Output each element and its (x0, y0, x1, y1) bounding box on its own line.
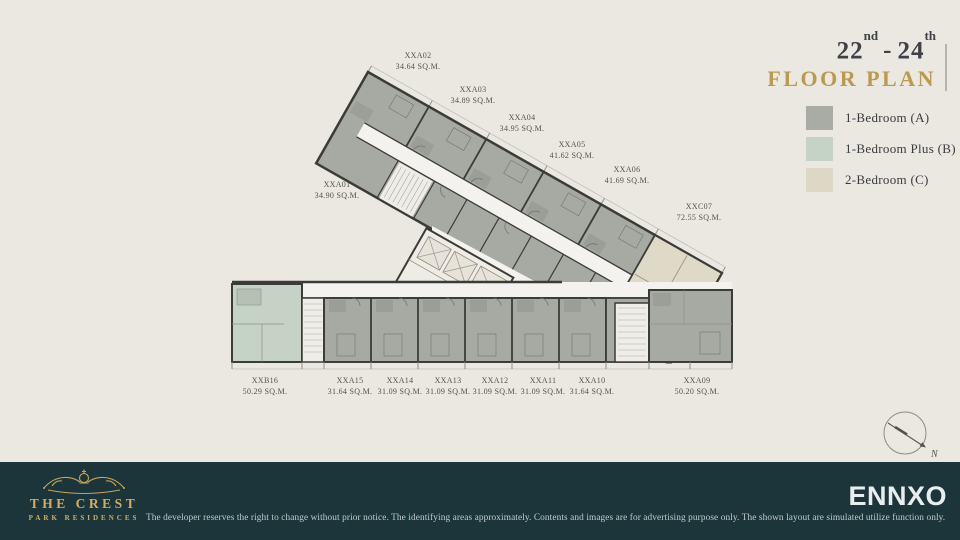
legend-swatch-b (806, 137, 833, 161)
page-title: 22nd-24th FLOOR PLAN (767, 38, 936, 90)
floor-range: 22nd-24th (767, 38, 936, 63)
unit-label-xxa09: XXA0950.20 SQ.M. (675, 375, 720, 397)
unit-label-xxa13: XXA1331.09 SQ.M. (426, 375, 471, 397)
page: XXA0234.64 SQ.M.XXA0334.89 SQ.M.XXA0434.… (0, 0, 960, 540)
publisher-logo: ENNXO (848, 483, 947, 510)
crest-ornament-icon (38, 466, 130, 496)
title-divider (945, 44, 947, 91)
legend-item-1-bedroom-plus-b: 1-Bedroom Plus (B) (806, 137, 956, 161)
unit-label-xxa14: XXA1431.09 SQ.M. (378, 375, 423, 397)
unit-xxa09-area (649, 290, 732, 362)
compass-n-label: N (930, 449, 939, 460)
legend-item-2-bedroom-c: 2-Bedroom (C) (806, 168, 956, 192)
unit-xxb16-area (232, 284, 302, 362)
legend-swatch-c (806, 168, 833, 192)
bottom-wing (232, 282, 732, 369)
floor-plan-heading: FLOOR PLAN (767, 68, 936, 90)
unit-label-xxa12: XXA1231.09 SQ.M. (473, 375, 518, 397)
brand-subname: PARK RESIDENCES (28, 514, 140, 522)
legend-swatch-a (806, 106, 833, 130)
legend-item-1-bedroom-a: 1-Bedroom (A) (806, 106, 956, 130)
unit-label-xxa11: XXA1131.09 SQ.M. (521, 375, 566, 397)
disclaimer-text: The developer reserves the right to chan… (146, 513, 946, 523)
unit-label-xxa15: XXA1531.64 SQ.M. (328, 375, 373, 397)
legend: 1-Bedroom (A) 1-Bedroom Plus (B) 2-Bedro… (806, 106, 956, 199)
unit-label-xxa10: XXA1031.64 SQ.M. (570, 375, 615, 397)
unit-label-xxb16: XXB1650.29 SQ.M. (243, 375, 288, 397)
floor-to: 24 (897, 37, 924, 64)
unit-label-xxc07: XXC0772.55 SQ.M. (677, 201, 722, 223)
stairwell-east (615, 303, 649, 362)
unit-label-xxa02: XXA0234.64 SQ.M. (396, 50, 441, 72)
stairwell-south-west (302, 298, 324, 362)
brand-name: THE CREST (28, 496, 140, 512)
footer-bar: THE CREST PARK RESIDENCES The developer … (0, 462, 960, 540)
brand-logo: THE CREST PARK RESIDENCES (28, 466, 140, 522)
unit-label-xxa01: XXA0134.90 SQ.M. (315, 179, 360, 201)
unit-label-xxa05: XXA0541.62 SQ.M. (550, 139, 595, 161)
floor-from: 22 (837, 37, 864, 64)
unit-label-xxa04: XXA0434.95 SQ.M. (500, 112, 545, 134)
unit-label-xxa03: XXA0334.89 SQ.M. (451, 84, 496, 106)
compass-north-icon: N (878, 404, 952, 468)
unit-label-xxa06: XXA0641.69 SQ.M. (605, 164, 650, 186)
